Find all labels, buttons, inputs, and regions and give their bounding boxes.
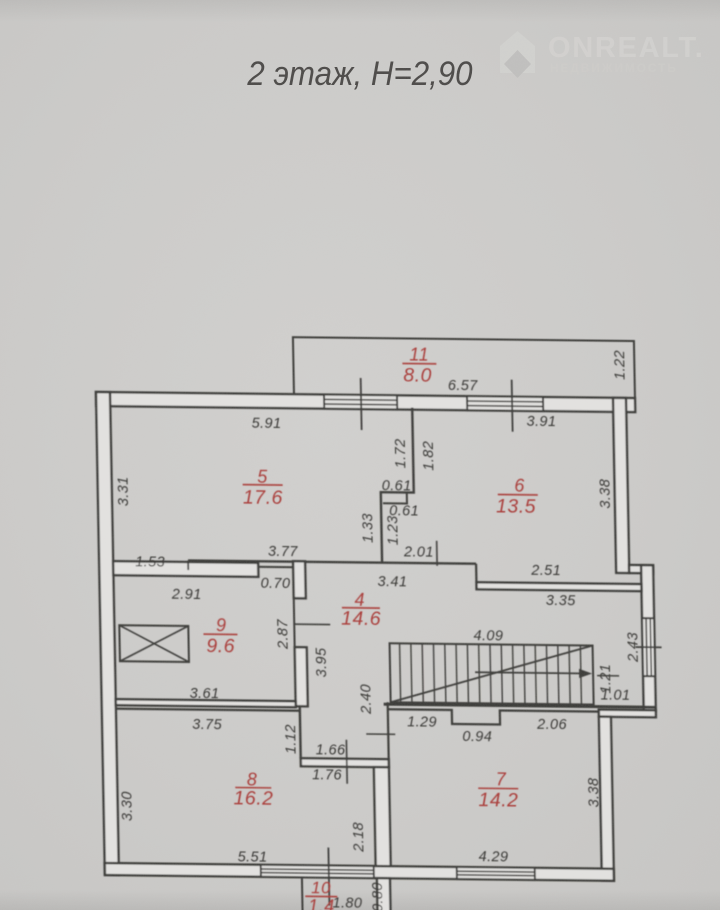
svg-text:3.38: 3.38: [597, 479, 614, 509]
svg-text:17.6: 17.6: [243, 487, 283, 509]
svg-text:1.4: 1.4: [308, 896, 335, 910]
svg-text:3.77: 3.77: [268, 544, 299, 560]
svg-text:1.66: 1.66: [316, 742, 347, 758]
svg-text:3.30: 3.30: [119, 791, 136, 821]
svg-text:14.2: 14.2: [478, 789, 518, 811]
svg-text:9.6: 9.6: [206, 635, 235, 657]
svg-text:1.76: 1.76: [312, 767, 343, 783]
svg-text:3.31: 3.31: [116, 476, 133, 506]
svg-text:2.01: 2.01: [403, 544, 434, 560]
svg-text:1.12: 1.12: [283, 724, 300, 754]
svg-text:2.87: 2.87: [275, 619, 292, 651]
svg-text:2.51: 2.51: [530, 563, 561, 579]
svg-text:5: 5: [257, 467, 268, 487]
svg-text:3.38: 3.38: [586, 778, 603, 808]
svg-text:4.29: 4.29: [478, 849, 508, 865]
svg-text:3.91: 3.91: [526, 414, 556, 430]
svg-text:1.22: 1.22: [612, 350, 629, 380]
svg-text:0.70: 0.70: [260, 576, 290, 592]
svg-text:2.18: 2.18: [351, 822, 368, 853]
svg-text:7: 7: [496, 769, 507, 789]
svg-text:1.80: 1.80: [332, 896, 362, 910]
svg-text:1.33: 1.33: [360, 513, 377, 543]
svg-text:4.09: 4.09: [473, 628, 503, 644]
svg-text:6.57: 6.57: [448, 378, 479, 394]
svg-text:1.82: 1.82: [421, 441, 438, 471]
svg-text:5.51: 5.51: [238, 850, 268, 866]
svg-text:1.01: 1.01: [600, 688, 630, 704]
svg-text:9: 9: [216, 615, 227, 635]
svg-text:3.41: 3.41: [377, 574, 407, 590]
svg-text:3.95: 3.95: [314, 647, 331, 678]
svg-text:5.91: 5.91: [251, 416, 281, 432]
svg-text:11: 11: [409, 345, 429, 365]
svg-text:0.94: 0.94: [462, 729, 492, 745]
svg-text:1.53: 1.53: [135, 554, 165, 570]
svg-text:ONREALT.: ONREALT.: [548, 32, 704, 64]
svg-text:6: 6: [514, 476, 525, 496]
svg-text:1.23: 1.23: [385, 515, 402, 545]
svg-text:8.0: 8.0: [403, 364, 432, 386]
svg-text:2.91: 2.91: [171, 587, 202, 603]
svg-text:3.61: 3.61: [189, 686, 219, 702]
svg-text:2.40: 2.40: [358, 684, 375, 715]
svg-text:НЕДВИЖИМОСТЬ: НЕДВИЖИМОСТЬ: [550, 61, 678, 75]
svg-text:0.80: 0.80: [370, 882, 387, 910]
svg-text:3.35: 3.35: [546, 593, 577, 609]
svg-text:3.75: 3.75: [192, 717, 223, 733]
svg-text:2.06: 2.06: [536, 717, 568, 733]
svg-text:1.29: 1.29: [407, 714, 437, 730]
svg-text:0.61: 0.61: [382, 478, 412, 494]
svg-text:14.6: 14.6: [341, 608, 381, 630]
svg-text:10: 10: [311, 878, 331, 897]
svg-text:16.2: 16.2: [233, 787, 273, 809]
svg-text:2.43: 2.43: [625, 632, 642, 663]
svg-text:13.5: 13.5: [496, 495, 536, 517]
svg-text:1.72: 1.72: [393, 438, 410, 468]
svg-text:2 этаж, Н=2,90: 2 этаж, Н=2,90: [246, 54, 472, 93]
